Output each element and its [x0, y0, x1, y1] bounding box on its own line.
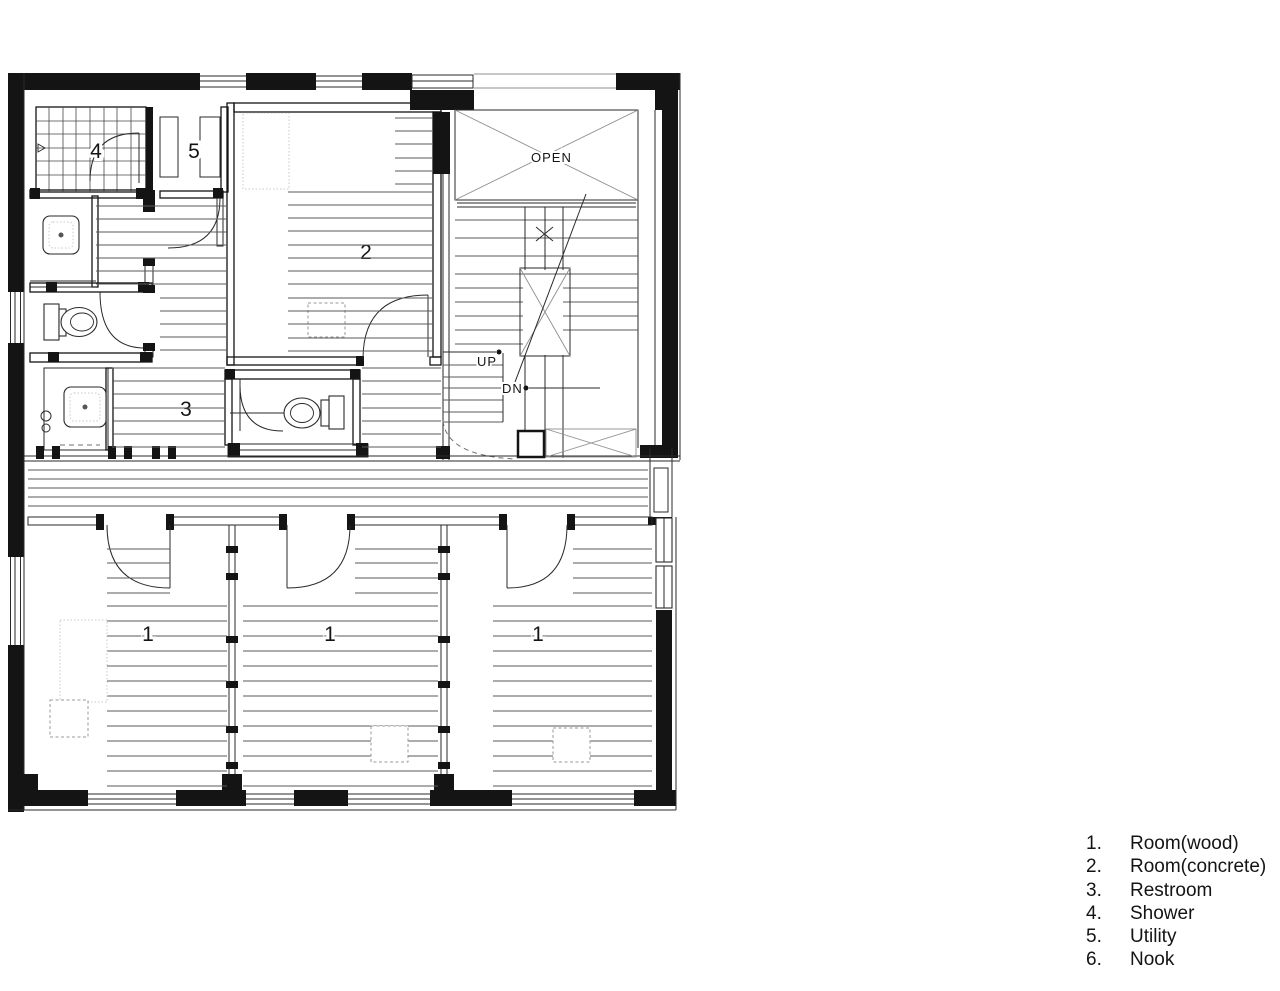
legend-label: Utility — [1130, 925, 1176, 948]
wc-lower — [225, 369, 368, 457]
legend-label: Shower — [1130, 902, 1194, 925]
legend-num: 5. — [1086, 925, 1130, 948]
upper-sink-counter — [30, 196, 98, 287]
room1b-door-swing — [287, 525, 350, 588]
bottom-windows — [88, 794, 634, 804]
wc2-door-swing — [240, 385, 283, 431]
top-window-2 — [316, 76, 362, 87]
legend-label: Room(concrete) — [1130, 855, 1266, 878]
stair-door-swing-dashed — [443, 421, 516, 459]
utility-door-swing — [168, 198, 220, 248]
nook-bench — [518, 429, 636, 457]
legend-label: Restroom — [1130, 879, 1212, 902]
room2-door-swing — [363, 295, 428, 359]
bedroom-floors: 1 1 1 — [50, 549, 652, 786]
legend-item-5: 5. Utility — [1086, 925, 1266, 948]
room1a-label: 1 — [142, 623, 154, 646]
legend-num: 3. — [1086, 879, 1130, 902]
room1c-door-swing — [507, 525, 567, 588]
legend-label: Room(wood) — [1130, 832, 1239, 855]
open-label: OPEN — [531, 150, 572, 165]
corridor — [24, 429, 680, 506]
stair-and-void: OPEN UP DN — [436, 110, 638, 460]
room-restroom: 3 — [41, 368, 192, 450]
legend-item-6: 6. Nook — [1086, 948, 1266, 971]
room5-label: 5 — [188, 140, 200, 163]
legend: 1. Room(wood) 2. Room(concrete) 3. Restr… — [1086, 832, 1266, 972]
room4-label: 4 — [90, 140, 102, 163]
legend-item-1: 1. Room(wood) — [1086, 832, 1266, 855]
room1a-door-swing — [107, 525, 170, 588]
open-void: OPEN — [455, 110, 638, 200]
legend-num: 2. — [1086, 855, 1130, 878]
room1c-label: 1 — [532, 623, 544, 646]
toilet-2 — [230, 396, 344, 429]
top-window-3 — [410, 75, 474, 110]
room-concrete: 2 — [227, 103, 450, 366]
bedroom-wall-and-doors — [28, 514, 652, 588]
toilet-1 — [44, 304, 97, 340]
wc1-door-swing — [100, 292, 145, 348]
room3-label: 3 — [180, 398, 192, 421]
legend-item-4: 4. Shower — [1086, 902, 1266, 925]
legend-item-2: 2. Room(concrete) — [1086, 855, 1266, 878]
up-label: UP — [477, 354, 497, 369]
legend-num: 4. — [1086, 902, 1130, 925]
bedroom-partitions — [226, 525, 450, 774]
legend-num: 6. — [1086, 948, 1130, 971]
legend-num: 1. — [1086, 832, 1130, 855]
legend-item-3: 3. Restroom — [1086, 879, 1266, 902]
room2-label: 2 — [360, 241, 372, 264]
room1b-label: 1 — [324, 623, 336, 646]
legend-label: Nook — [1130, 948, 1174, 971]
floor-plan-page: 4 5 — [0, 0, 1280, 991]
dn-label: DN — [502, 381, 523, 396]
top-window-1 — [200, 76, 246, 87]
exterior-walls — [8, 73, 680, 812]
stair-break-line — [512, 194, 586, 390]
stair-void-box — [520, 268, 570, 356]
